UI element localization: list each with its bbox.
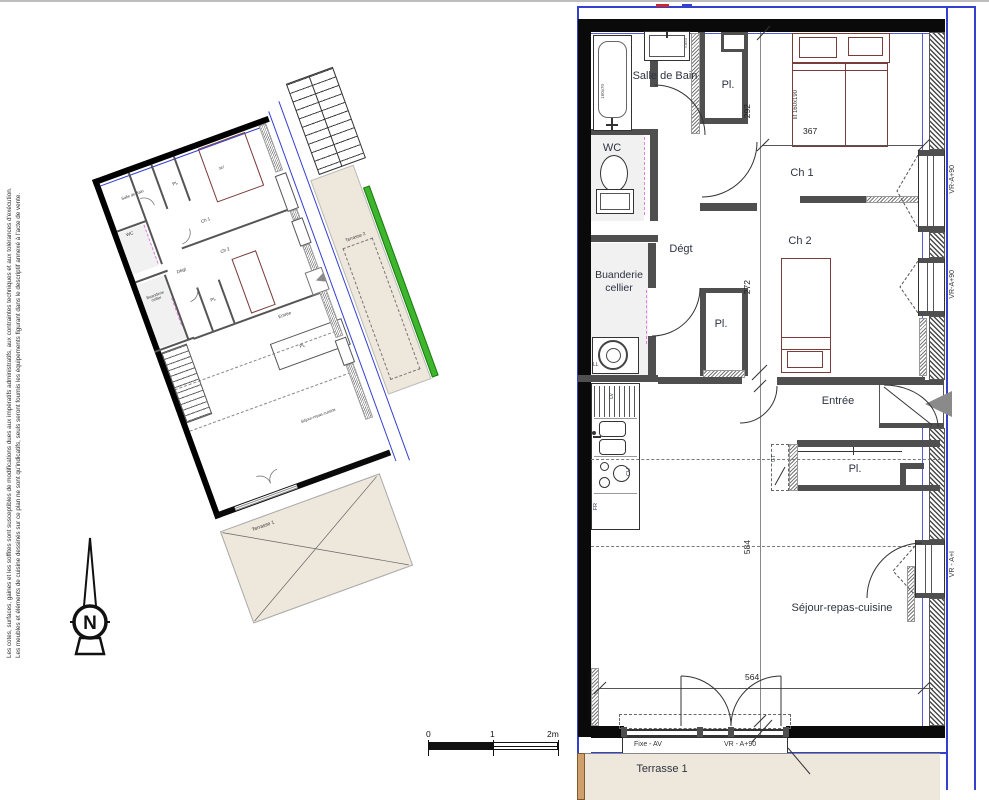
dim-292: 292 <box>742 104 752 118</box>
room-label-buanderie-line1: Buanderie <box>584 269 654 282</box>
bathtub-size-label: 160x70 <box>600 84 605 99</box>
dishwasher <box>594 386 637 417</box>
toilet <box>600 155 628 192</box>
washer-label: LL <box>593 362 599 368</box>
room-label-degt: Dégt <box>656 243 706 255</box>
room-label-buanderie-line2: cellier <box>584 282 654 295</box>
kitchen-sink <box>599 421 626 437</box>
bay-vr-label: VR - A+90 <box>724 741 756 748</box>
window-sejour-label: VR - A+I <box>949 551 956 577</box>
room-label-pl-entree: Pl. <box>839 463 871 475</box>
room-label-wc: WC <box>595 142 629 154</box>
cooktop-burner <box>599 477 610 488</box>
kitchen-sink <box>599 439 626 455</box>
bed-size-label: lit 160x190 <box>793 90 799 119</box>
room-label-buanderie: Buanderie cellier <box>584 269 654 295</box>
cooktop-label: CU <box>626 468 632 476</box>
room-label-terrasse1: Terrasse 1 <box>622 763 702 775</box>
window-ch1-label: VR-A+90 <box>949 165 956 194</box>
dim-367: 367 <box>803 126 817 136</box>
dim-584: 584 <box>742 540 752 554</box>
floor-plan-sheet: Les cotes, surfaces, gaines et les soffi… <box>0 0 989 800</box>
main-floor-plan: GT LV CU FR LL 160x70 70x50 <box>0 0 989 800</box>
room-label-pl-haut: Pl. <box>713 79 743 91</box>
terrasse-1-floor <box>584 753 940 800</box>
room-label-entree: Entrée <box>799 395 877 407</box>
technical-duct-gt <box>771 444 789 491</box>
room-label-ch1: Ch 1 <box>779 167 825 179</box>
window-ch2-label: VR-A+90 <box>949 270 956 299</box>
duct-box <box>721 32 747 52</box>
window-sejour <box>915 540 945 598</box>
bay-window-blind-box <box>619 714 791 729</box>
dishwasher-label: LV <box>609 393 615 399</box>
window-ch1 <box>918 150 945 232</box>
lot-boundary <box>577 6 975 8</box>
wall-segment <box>786 726 945 738</box>
terrace-wood-edge <box>577 753 585 800</box>
window-ch2 <box>918 258 945 316</box>
room-label-pl-milieu: Pl. <box>705 318 737 330</box>
cooktop-burner <box>600 462 609 471</box>
fridge-label: FR <box>593 503 599 510</box>
washbasin-size-label: 70x50 <box>683 38 688 49</box>
entrance-arrow-icon <box>925 391 952 417</box>
room-label-ch2: Ch 2 <box>777 235 823 247</box>
room-label-sejour: Séjour-repas-cuisine <box>768 602 916 614</box>
dim-564: 564 <box>745 672 759 682</box>
bay-fixed-label: Fixe - AV <box>634 741 662 748</box>
room-label-salle-de-bain: Salle de Bain <box>615 70 715 82</box>
dim-272: 272 <box>742 280 752 294</box>
wall-segment <box>578 19 945 32</box>
